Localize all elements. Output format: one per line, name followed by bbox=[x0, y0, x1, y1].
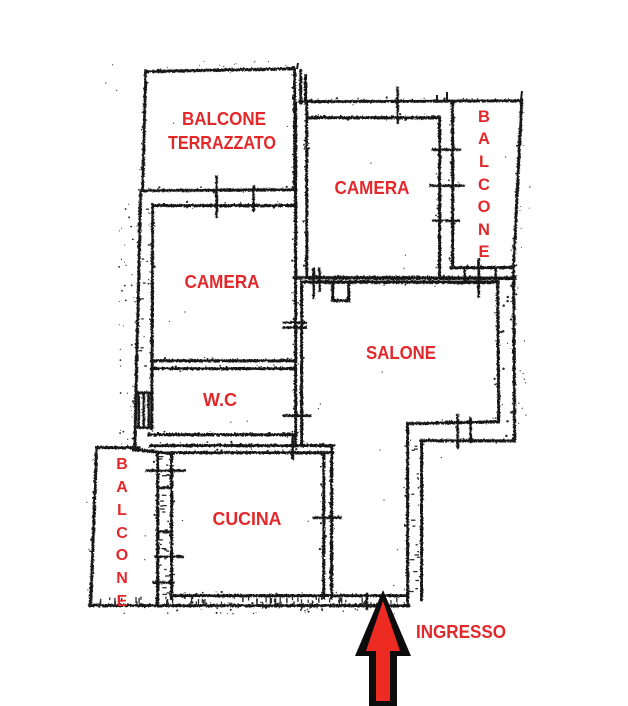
svg-text:E: E bbox=[478, 243, 489, 261]
svg-text:W.C: W.C bbox=[203, 390, 237, 410]
svg-text:CAMERA: CAMERA bbox=[335, 178, 410, 198]
svg-text:TERRAZZATO: TERRAZZATO bbox=[168, 133, 276, 153]
svg-text:O: O bbox=[478, 198, 491, 216]
svg-text:E: E bbox=[117, 593, 128, 610]
svg-text:L: L bbox=[117, 502, 127, 519]
svg-text:C: C bbox=[478, 176, 490, 194]
svg-text:A: A bbox=[116, 479, 128, 496]
svg-text:N: N bbox=[478, 221, 490, 239]
svg-text:C: C bbox=[116, 525, 128, 542]
svg-text:B: B bbox=[116, 456, 128, 473]
svg-text:A: A bbox=[478, 130, 490, 148]
svg-text:INGRESSO: INGRESSO bbox=[416, 622, 506, 642]
svg-text:CUCINA: CUCINA bbox=[213, 509, 282, 529]
svg-text:L: L bbox=[479, 153, 489, 171]
svg-text:CAMERA: CAMERA bbox=[185, 272, 260, 292]
svg-text:BALCONE: BALCONE bbox=[182, 109, 266, 129]
svg-text:SALONE: SALONE bbox=[366, 343, 436, 363]
svg-text:B: B bbox=[478, 108, 490, 126]
svg-text:O: O bbox=[116, 547, 128, 564]
svg-text:N: N bbox=[116, 570, 128, 587]
